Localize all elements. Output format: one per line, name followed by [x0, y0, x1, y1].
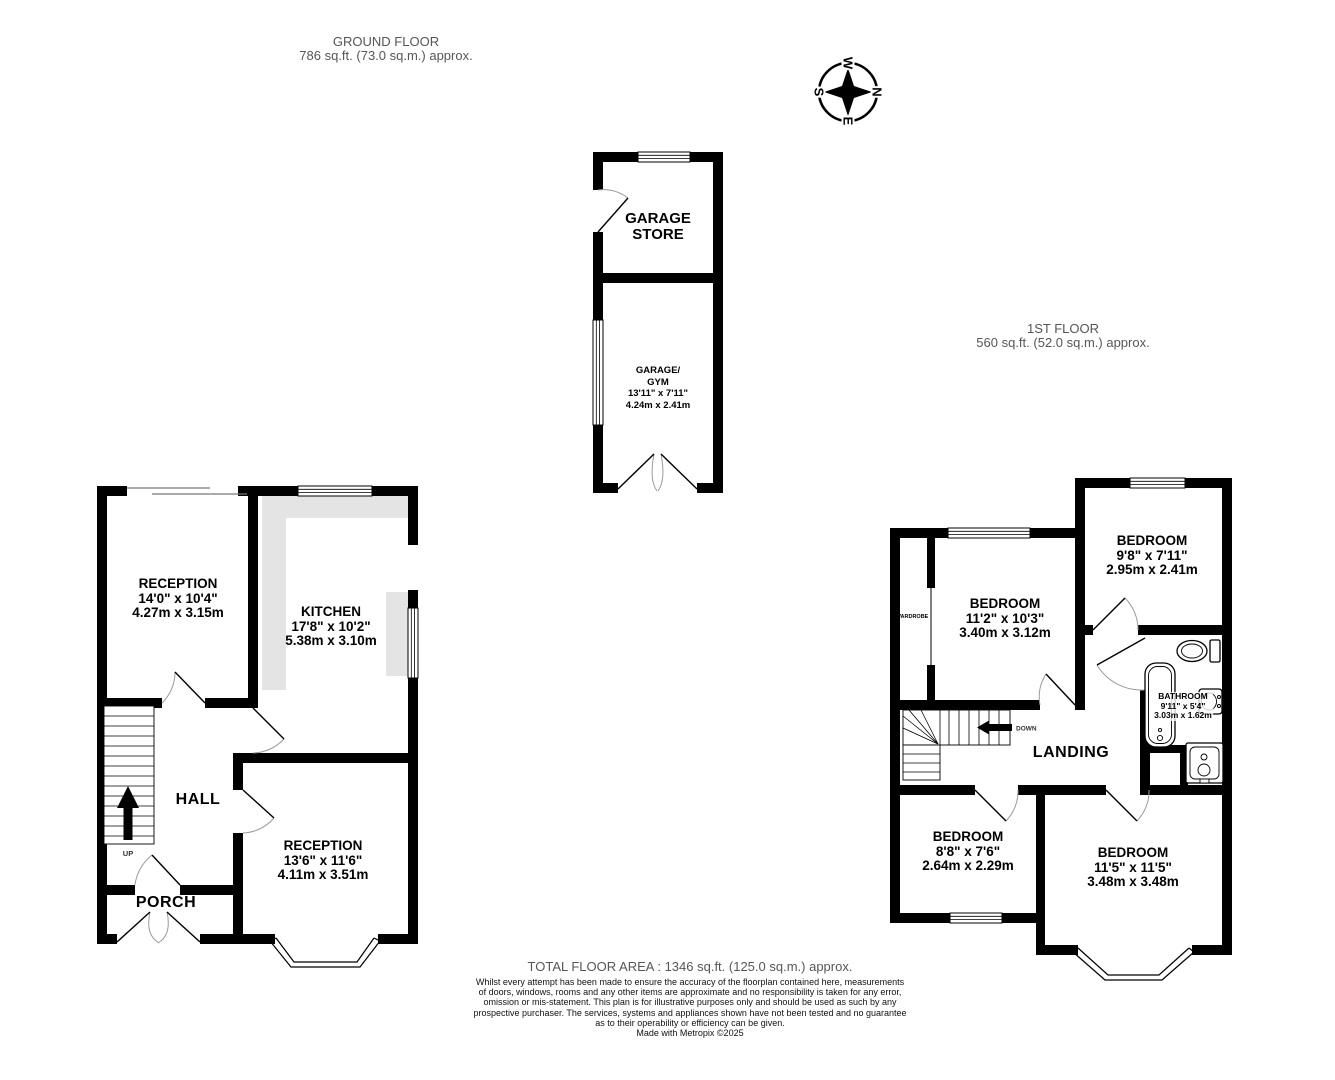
reception2-label: RECEPTION 13'6" x 11'6" 4.11m x 3.51m	[278, 839, 369, 883]
compass-e: E	[841, 117, 856, 126]
garage-gym-label: GARAGE/ GYM 13'11" x 7'11" 4.24m x 2.41m	[626, 365, 690, 411]
kitchen-top-window	[298, 486, 372, 496]
bedroom3-label: BEDROOM 8'8" x 7'6" 2.64m x 2.29m	[922, 830, 1014, 874]
garage-double-doors	[618, 454, 697, 491]
kitchen-counters	[262, 496, 412, 690]
garage-plan	[593, 152, 723, 493]
garage-walls	[593, 152, 723, 493]
bedroom4-bay-window	[1073, 948, 1194, 980]
bedroom4-label: BEDROOM 11'5" x 11'5" 3.48m x 3.48m	[1087, 846, 1179, 890]
reception1-door	[162, 672, 205, 703]
bedroom1-window	[948, 528, 1030, 538]
bedroom2-door	[1093, 598, 1138, 630]
total-floor-area: TOTAL FLOOR AREA : 1346 sq.ft. (125.0 sq…	[528, 960, 853, 974]
reception2-bay-window	[270, 938, 380, 967]
porch-hall-door	[135, 855, 180, 885]
compass-icon: N E S W	[812, 57, 885, 126]
reception1-label: RECEPTION 14'0" x 10'4" 4.27m x 3.15m	[132, 577, 224, 621]
ground-stairs: UP	[104, 706, 154, 858]
metropix-credit: Made with Metropix ©2025	[473, 1028, 906, 1038]
hall-kitchen-door	[253, 708, 284, 753]
bedroom1-label: BEDROOM 11'2" x 10'3" 3.40m x 3.12m	[959, 597, 1051, 641]
ground-floor-title: GROUND FLOOR 786 sq.ft. (73.0 sq.m.) app…	[299, 35, 472, 62]
bathroom-door	[1097, 638, 1145, 690]
up-label: UP	[123, 849, 133, 858]
down-label: DOWN	[1016, 726, 1037, 733]
bedroom3-window	[950, 913, 1002, 923]
first-floor-area: 560 sq.ft. (52.0 sq.m.) approx.	[976, 336, 1149, 350]
bathroom-label: BATHROOM 9'11" x 5'4" 3.03m x 1.62m	[1153, 692, 1213, 721]
first-floor-name: 1ST FLOOR	[976, 322, 1149, 336]
bedroom2-label: BEDROOM 9'8" x 7'11" 2.95m x 2.41m	[1106, 534, 1198, 578]
bedroom1-door	[1039, 674, 1075, 705]
second-sink-icon	[1186, 743, 1223, 783]
compass-n: N	[870, 87, 885, 96]
kitchen-right-window	[408, 608, 418, 678]
hall-label: HALL	[176, 791, 221, 808]
landing-label: LANDING	[1033, 744, 1109, 761]
garage-store-label: GARAGE STORE	[625, 211, 691, 243]
reception2-door	[243, 790, 274, 833]
garage-window-top	[638, 152, 690, 162]
porch-label: PORCH	[136, 894, 196, 911]
kitchen-label: KITCHEN 17'8" x 10'2" 5.38m x 3.10m	[285, 605, 377, 649]
ground-floor-name: GROUND FLOOR	[299, 35, 472, 49]
landing-stairs: DOWN	[903, 710, 1037, 780]
reception1-open-wall-lines	[127, 488, 247, 494]
garage-side-door	[598, 190, 628, 232]
wardrobe-label: WARDROBE	[896, 614, 929, 620]
disclaimer-text: Whilst every attempt has been made to en…	[473, 977, 906, 1038]
first-floor-title: 1ST FLOOR 560 sq.ft. (52.0 sq.m.) approx…	[976, 322, 1149, 349]
garage-window-left	[593, 320, 603, 425]
compass-w: W	[841, 57, 856, 70]
bedroom2-window	[1130, 478, 1185, 488]
front-double-doors	[117, 912, 200, 943]
ground-floor-area: 786 sq.ft. (73.0 sq.m.) approx.	[299, 49, 472, 63]
compass-s: S	[812, 88, 827, 97]
toilet-icon	[1177, 640, 1220, 662]
bedroom3-door	[975, 790, 1018, 821]
